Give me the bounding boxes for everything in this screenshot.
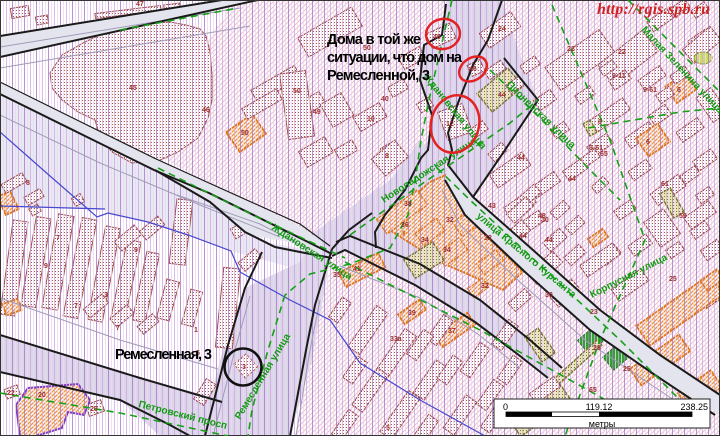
svg-text:12: 12 (446, 121, 454, 128)
svg-text:9: 9 (134, 247, 138, 254)
svg-text:http://rgis.spb.ru: http://rgis.spb.ru (597, 1, 710, 18)
svg-text:44: 44 (545, 237, 553, 244)
svg-text:32: 32 (481, 283, 489, 290)
svg-text:1: 1 (194, 327, 198, 334)
svg-text:34: 34 (443, 247, 451, 254)
svg-text:43: 43 (488, 203, 496, 210)
svg-text:48: 48 (433, 34, 441, 41)
svg-text:6: 6 (677, 87, 681, 94)
svg-text:34: 34 (421, 237, 429, 244)
svg-text:59: 59 (679, 213, 687, 220)
svg-text:37: 37 (448, 328, 456, 335)
svg-text:9: 9 (44, 263, 48, 270)
svg-text:8: 8 (26, 180, 30, 187)
svg-text:49: 49 (313, 109, 321, 116)
svg-text:32: 32 (484, 235, 492, 242)
svg-text:0: 0 (503, 402, 508, 412)
svg-text:24: 24 (498, 26, 506, 33)
svg-text:22: 22 (7, 390, 15, 397)
svg-text:35: 35 (333, 272, 341, 279)
svg-text:65: 65 (589, 387, 597, 394)
svg-text:28: 28 (593, 345, 601, 352)
svg-text:8: 8 (598, 119, 602, 126)
svg-text:25: 25 (623, 366, 631, 373)
svg-text:47: 47 (136, 1, 144, 8)
svg-text:33а: 33а (390, 336, 402, 343)
svg-text:Дома в той же: Дома в той же (327, 32, 421, 48)
svg-text:7: 7 (116, 325, 120, 332)
svg-text:22: 22 (567, 46, 575, 53)
svg-text:3: 3 (104, 292, 108, 299)
svg-text:65: 65 (600, 151, 608, 158)
svg-text:32: 32 (446, 217, 454, 224)
svg-text:44: 44 (519, 233, 527, 240)
svg-text:9-11: 9-11 (612, 73, 626, 80)
svg-text:Ремесленная, 3: Ремесленная, 3 (115, 347, 212, 363)
svg-text:50: 50 (293, 88, 301, 95)
svg-text:метры: метры (589, 419, 616, 429)
svg-text:44: 44 (568, 176, 576, 183)
svg-text:48: 48 (538, 213, 546, 220)
svg-text:44: 44 (498, 92, 506, 99)
svg-text:46: 46 (202, 107, 210, 114)
svg-text:61: 61 (661, 181, 669, 188)
svg-text:36: 36 (401, 222, 409, 229)
svg-text:50: 50 (241, 130, 249, 137)
svg-text:10: 10 (367, 116, 375, 123)
svg-text:7: 7 (56, 235, 60, 242)
svg-text:ситуации, что дом на: ситуации, что дом на (327, 50, 463, 66)
svg-text:8: 8 (385, 153, 389, 160)
svg-text:20: 20 (90, 406, 98, 413)
svg-text:6: 6 (646, 139, 650, 146)
svg-text:20: 20 (38, 392, 46, 399)
svg-text:7: 7 (74, 303, 78, 310)
svg-text:238.25: 238.25 (680, 402, 708, 412)
svg-text:3: 3 (242, 364, 246, 371)
svg-text:41: 41 (353, 266, 361, 273)
svg-text:40: 40 (381, 96, 389, 103)
svg-text:23: 23 (590, 309, 598, 316)
svg-text:5: 5 (386, 425, 390, 432)
svg-text:25: 25 (669, 276, 677, 283)
svg-text:9-61: 9-61 (643, 87, 657, 94)
svg-text:39: 39 (408, 310, 416, 317)
svg-text:119.12: 119.12 (586, 402, 613, 412)
svg-text:38: 38 (404, 201, 412, 208)
svg-text:30: 30 (545, 292, 553, 299)
svg-text:44: 44 (517, 155, 525, 162)
svg-text:46: 46 (469, 66, 477, 73)
svg-text:Ремесленной, 3: Ремесленной, 3 (327, 68, 430, 84)
svg-text:45: 45 (129, 85, 137, 92)
svg-text:22: 22 (618, 49, 626, 56)
